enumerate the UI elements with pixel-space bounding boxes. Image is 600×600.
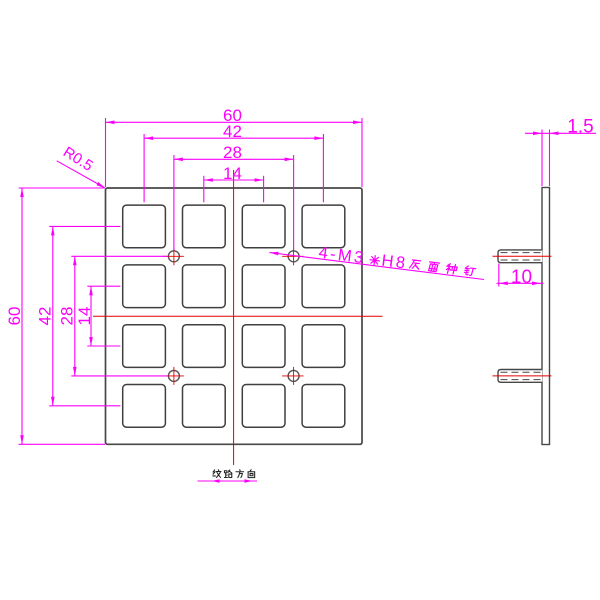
svg-text:14: 14 (223, 164, 242, 183)
svg-text:28: 28 (223, 143, 242, 162)
svg-text:42: 42 (36, 307, 55, 326)
svg-text:42: 42 (223, 122, 242, 141)
svg-text:14: 14 (75, 307, 94, 326)
svg-text:60: 60 (5, 307, 24, 326)
svg-text:H8: H8 (381, 252, 409, 273)
svg-text:10: 10 (511, 267, 532, 288)
svg-text:28: 28 (58, 307, 77, 326)
svg-text:1.5: 1.5 (567, 117, 593, 138)
